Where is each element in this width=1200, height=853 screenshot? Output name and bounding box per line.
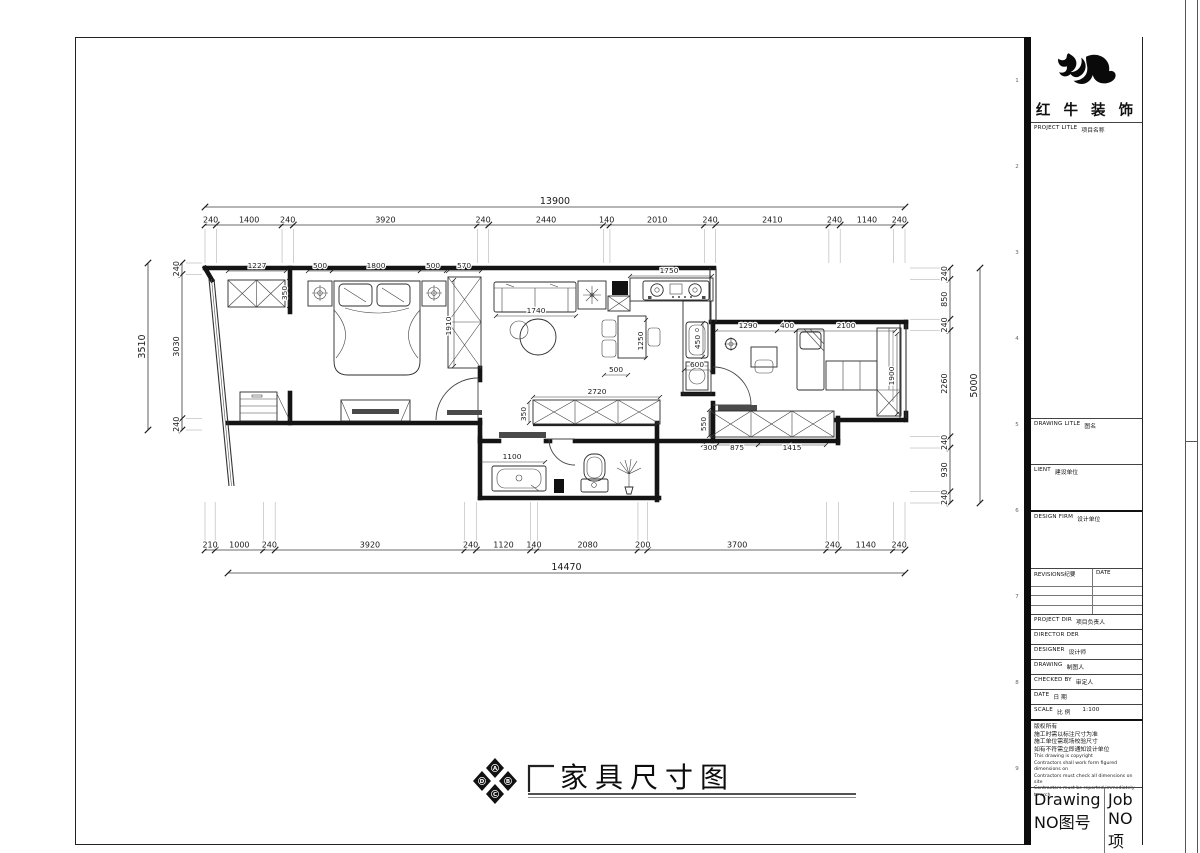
- svg-text:240: 240: [940, 490, 949, 505]
- fold-marks: 123456789: [1015, 78, 1019, 772]
- fan-coil-unit: [578, 281, 606, 309]
- drawing-by-field: DRAWING制图人: [1031, 659, 1142, 674]
- svg-text:3030: 3030: [172, 336, 181, 356]
- svg-text:8: 8: [1015, 680, 1019, 686]
- balcony-cabinet: [228, 280, 285, 307]
- revisions-table: REVISIONS纪要 DATE: [1031, 568, 1142, 614]
- svg-text:875: 875: [730, 443, 744, 452]
- bedroom2-door: [713, 367, 757, 411]
- svg-text:400: 400: [780, 321, 794, 330]
- interior-dim-1100: 1100: [478, 452, 547, 464]
- svg-text:1740: 1740: [527, 306, 546, 315]
- svg-text:240: 240: [172, 417, 181, 432]
- floor-drain-plant: [617, 459, 641, 494]
- svg-text:3920: 3920: [375, 216, 395, 225]
- drawing-title-field: DRAWING LITLE 图名: [1031, 418, 1142, 464]
- svg-text:300: 300: [703, 443, 717, 452]
- drawing-title: 家具尺寸图: [560, 756, 735, 796]
- project-title-field: PROJECT LITLE 项目名称: [1031, 122, 1142, 418]
- project-dir-field: PROJECT DIR项目负责人: [1031, 614, 1142, 629]
- revision-row-empty: [1093, 606, 1142, 615]
- revision-row-empty: [1031, 606, 1093, 615]
- bathroom-sliding-door: [499, 432, 556, 439]
- dim-chain-bottom-overall: 14470: [225, 562, 908, 576]
- svg-text:500: 500: [313, 261, 327, 270]
- bathroom-partition: [554, 479, 564, 493]
- svg-text:1800: 1800: [367, 261, 386, 270]
- svg-text:1750: 1750: [660, 266, 679, 275]
- svg-text:2080: 2080: [577, 541, 597, 550]
- revisions-date-header: DATE: [1093, 569, 1142, 587]
- svg-text:600: 600: [690, 360, 704, 369]
- design-firm-field: DESIGN FIRM 设计单位: [1031, 510, 1142, 568]
- svg-text:4: 4: [1015, 336, 1019, 342]
- interior-dim-875: 875: [715, 443, 760, 452]
- drawing-number-row: Drawing NO图号 Job NO项目编号: [1031, 787, 1142, 844]
- svg-text:7: 7: [1015, 594, 1019, 600]
- dim-chain-top-segments: 2401400240392024024401402010240241024011…: [202, 216, 908, 264]
- svg-text:2: 2: [1015, 164, 1019, 170]
- company-logo-row: 红 牛 装 饰: [1031, 37, 1142, 122]
- drawing-no-field: Drawing NO图号: [1031, 788, 1104, 853]
- copyright-notes: 版权所有 施工时需以标注尺寸为准 施工单位需现场校验尺寸 如有不符需立即通知设计…: [1031, 719, 1142, 787]
- svg-text:500: 500: [609, 365, 623, 374]
- dining-table: [602, 316, 660, 358]
- svg-text:850: 850: [940, 292, 949, 307]
- interior-dim-550: 550: [699, 408, 711, 438]
- tv-cabinet: [341, 400, 410, 421]
- svg-text:2260: 2260: [940, 373, 949, 393]
- interior-dim-450: 450: [693, 321, 705, 359]
- svg-text:350: 350: [519, 407, 528, 421]
- svg-text:240: 240: [940, 266, 949, 281]
- shaft: [608, 281, 630, 311]
- single-bed: [797, 329, 824, 390]
- nightstand-left: [308, 281, 332, 306]
- svg-text:6: 6: [1015, 508, 1019, 514]
- dimension-layer: 1390024014002403920240244014020102402410…: [137, 196, 983, 576]
- svg-text:1120: 1120: [493, 541, 513, 550]
- svg-text:1415: 1415: [783, 443, 802, 452]
- interior-dim-350: 350: [519, 400, 531, 425]
- svg-text:500: 500: [426, 261, 440, 270]
- svg-text:5: 5: [1015, 422, 1019, 428]
- svg-text:14470: 14470: [551, 562, 581, 573]
- interior-dim-300: 300: [701, 443, 719, 452]
- coffee-table: [510, 319, 556, 355]
- svg-text:240: 240: [827, 216, 842, 225]
- bedroom-door: [436, 378, 482, 420]
- svg-text:B: B: [506, 779, 510, 785]
- balcony-window: [209, 279, 234, 486]
- washbasin: [492, 466, 546, 491]
- svg-text:240: 240: [892, 541, 907, 550]
- svg-text:1140: 1140: [856, 541, 876, 550]
- nightstand-right: [422, 281, 446, 306]
- svg-text:1290: 1290: [739, 321, 758, 330]
- bedside-cabinet: [826, 361, 877, 390]
- revision-row-empty: [1031, 596, 1093, 606]
- svg-text:13900: 13900: [540, 196, 570, 207]
- job-no-field: Job NO项目编号: [1104, 788, 1142, 853]
- svg-text:240: 240: [203, 216, 218, 225]
- svg-text:240: 240: [463, 541, 478, 550]
- svg-text:2440: 2440: [536, 216, 556, 225]
- dim-chain-right-overall: 5000: [969, 265, 983, 506]
- dim-chain-top-overall: 13900: [202, 196, 908, 210]
- designer-field: DESIGNER设计师: [1031, 644, 1142, 659]
- floor-plan-walls: [205, 268, 906, 500]
- svg-text:140: 140: [599, 216, 614, 225]
- svg-text:240: 240: [940, 317, 949, 332]
- svg-text:240: 240: [892, 216, 907, 225]
- svg-text:1910: 1910: [444, 316, 453, 335]
- svg-text:1400: 1400: [239, 216, 259, 225]
- interior-dim-1415: 1415: [756, 443, 828, 452]
- svg-text:1: 1: [1015, 78, 1019, 84]
- company-logo-icon: [1053, 49, 1121, 99]
- interior-dim-2720: 2720: [531, 387, 662, 399]
- title-block: 红 牛 装 饰 PROJECT LITLE 项目名称 DRAWING LITLE…: [1031, 37, 1142, 845]
- director-field: DIRECTOR DER: [1031, 629, 1142, 644]
- svg-text:3920: 3920: [360, 541, 380, 550]
- svg-text:1140: 1140: [857, 216, 877, 225]
- bathroom-door: [549, 439, 575, 465]
- balcony-drawer-unit: [240, 392, 290, 421]
- svg-text:2720: 2720: [588, 387, 607, 396]
- svg-text:A: A: [493, 766, 498, 772]
- svg-text:240: 240: [262, 541, 277, 550]
- svg-text:240: 240: [825, 541, 840, 550]
- floor-plan-canvas: 1390024014002403920240244014020102402410…: [0, 0, 1200, 853]
- dim-chain-left-segments: 2403030240: [172, 260, 202, 433]
- svg-text:200: 200: [635, 541, 650, 550]
- svg-text:240: 240: [475, 216, 490, 225]
- svg-text:240: 240: [172, 261, 181, 276]
- double-bed: [334, 281, 420, 375]
- svg-text:550: 550: [699, 417, 708, 431]
- svg-text:5000: 5000: [969, 373, 980, 397]
- dim-chain-right-segments: 2408502402260240930240: [910, 265, 953, 506]
- svg-text:1000: 1000: [229, 541, 249, 550]
- svg-text:9: 9: [1015, 766, 1019, 772]
- dim-chain-bottom-segments: 2101000240392024011201402080200370024011…: [202, 502, 908, 553]
- svg-text:240: 240: [280, 216, 295, 225]
- svg-text:1100: 1100: [503, 452, 522, 461]
- interior-dim-1250: 1250: [636, 318, 648, 360]
- scale-value: 1:100: [1082, 707, 1099, 713]
- svg-text:1900: 1900: [887, 366, 896, 385]
- hallway-storage: [533, 400, 660, 424]
- scale-field: SCALE比 例 1:100: [1031, 704, 1142, 719]
- svg-text:D: D: [480, 779, 485, 785]
- revision-row-empty: [1031, 587, 1093, 597]
- svg-text:3: 3: [1015, 250, 1019, 256]
- dim-chain-left-overall: 3510: [137, 260, 151, 433]
- svg-text:1250: 1250: [636, 331, 645, 350]
- north-compass-icon: A B C D: [473, 758, 517, 804]
- interior-dim-500: 500: [602, 365, 630, 377]
- revision-row-empty: [1093, 596, 1142, 606]
- svg-text:210: 210: [202, 541, 217, 550]
- svg-text:350: 350: [280, 286, 289, 300]
- svg-text:570: 570: [457, 261, 471, 270]
- drawing-sheet-page: 1390024014002403920240244014020102402410…: [0, 0, 1200, 853]
- toilet: [581, 454, 608, 492]
- date-field: DATE日 期: [1031, 689, 1142, 704]
- svg-text:450: 450: [693, 335, 702, 349]
- svg-text:240: 240: [940, 435, 949, 450]
- svg-text:930: 930: [940, 462, 949, 477]
- svg-text:3700: 3700: [727, 541, 747, 550]
- svg-text:2410: 2410: [762, 216, 782, 225]
- storage-cabinet-bedroom2: [710, 411, 834, 437]
- desk: [751, 347, 777, 373]
- svg-text:C: C: [493, 792, 497, 798]
- revision-row-empty: [1093, 587, 1142, 597]
- kitchen-stove: [630, 278, 713, 301]
- ceiling-light: [724, 337, 738, 351]
- svg-text:2010: 2010: [647, 216, 667, 225]
- svg-text:1227: 1227: [248, 261, 267, 270]
- company-name: 红 牛 装 饰: [1036, 99, 1137, 120]
- svg-text:2100: 2100: [837, 321, 856, 330]
- svg-text:140: 140: [526, 541, 541, 550]
- checked-by-field: CHECKED BY审定人: [1031, 674, 1142, 689]
- svg-text:3510: 3510: [137, 334, 148, 358]
- svg-text:240: 240: [702, 216, 717, 225]
- client-field: LIENT 建设单位: [1031, 464, 1142, 510]
- revisions-header: REVISIONS纪要: [1031, 569, 1093, 587]
